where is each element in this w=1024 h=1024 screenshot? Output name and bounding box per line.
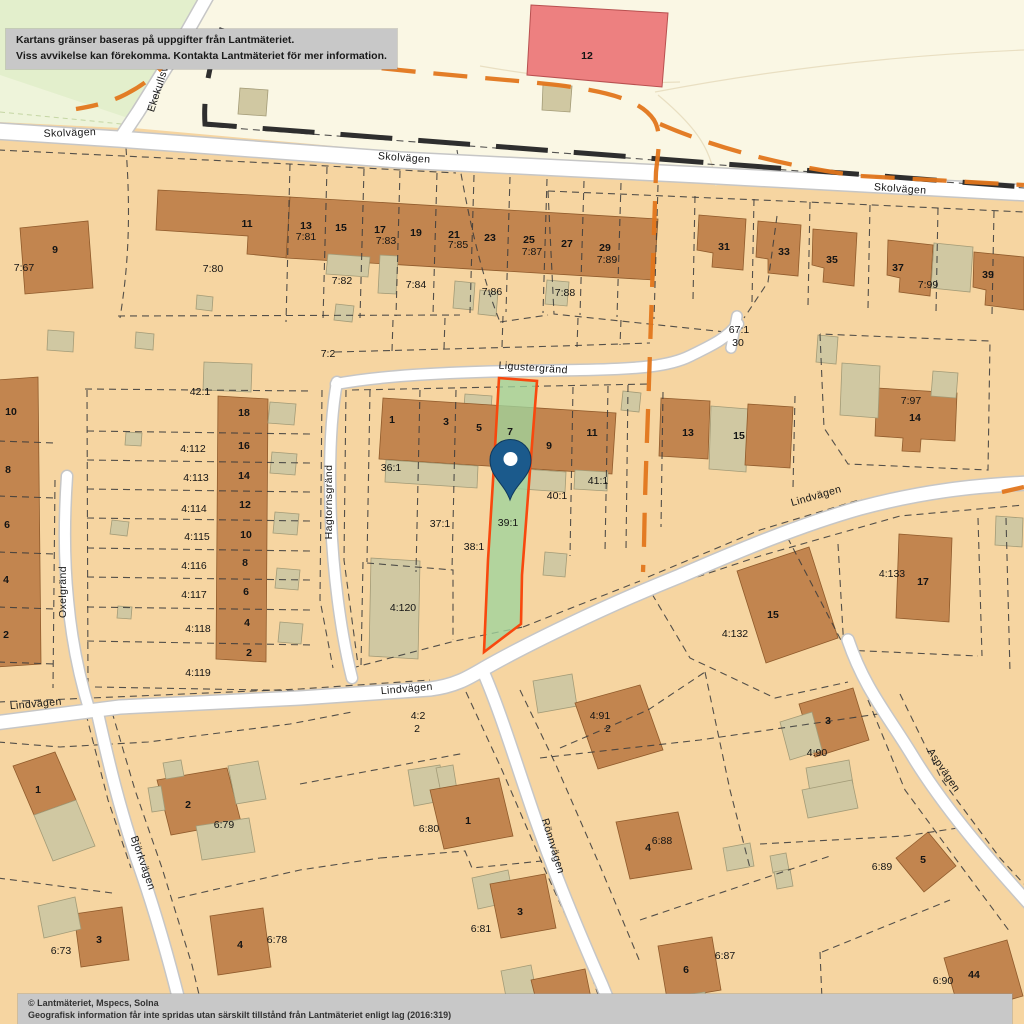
- outbuilding: [774, 869, 793, 889]
- parcel-label: 7:86: [482, 286, 503, 298]
- building: [490, 874, 556, 938]
- outbuilding: [278, 622, 303, 644]
- house-number: 10: [5, 406, 17, 418]
- house-number: 3: [96, 934, 102, 946]
- house-number: 17: [917, 576, 929, 588]
- street-label: Skolvägen: [43, 126, 96, 140]
- parcel-label: 6:87: [715, 950, 736, 962]
- house-number: 3: [825, 715, 831, 727]
- parcel-label: 4:118: [185, 623, 211, 635]
- house-number: 6: [683, 964, 689, 976]
- house-number: 31: [718, 241, 730, 253]
- parcel-label: 4:2: [411, 710, 426, 722]
- outbuilding: [196, 295, 213, 311]
- house-number: 8: [5, 464, 11, 476]
- parcel-label: 36:1: [381, 462, 402, 474]
- outbuilding: [931, 371, 958, 398]
- outbuilding: [203, 362, 252, 392]
- house-number: 15: [767, 609, 779, 621]
- outbuilding: [270, 452, 297, 475]
- building-12: [527, 5, 668, 87]
- house-number: 15: [733, 430, 745, 442]
- parcel-label: 6:89: [872, 861, 893, 873]
- outbuilding: [238, 88, 268, 116]
- house-number: 10: [240, 529, 252, 541]
- house-number: 35: [826, 254, 838, 266]
- parcel-label: 6:81: [471, 923, 492, 935]
- parcel-label: 4:112: [180, 443, 206, 455]
- house-number: 4: [3, 574, 9, 586]
- parcel-label: 4:113: [183, 472, 209, 484]
- outbuilding: [110, 520, 129, 536]
- parcel-label: 7:83: [376, 235, 397, 247]
- parcel-label: 4:91: [590, 710, 611, 722]
- parcel-label: 6:80: [419, 823, 440, 835]
- outbuilding: [723, 843, 754, 871]
- disclaimer-box: Kartans gränser baseras på uppgifter frå…: [6, 29, 397, 69]
- parcel-label: 37:1: [430, 518, 451, 530]
- map-canvas[interactable]: SkolvägenSkolvägenSkolvägenEkekullsvägen…: [0, 0, 1024, 1024]
- house-number: 4: [237, 939, 243, 951]
- house-number: 15: [335, 222, 347, 234]
- parcel-label: 42:1: [190, 386, 211, 398]
- house-number: 14: [238, 470, 250, 482]
- parcel-label: 4:115: [184, 531, 210, 543]
- parcel-label: 4:117: [181, 589, 207, 601]
- house-number: 2: [246, 647, 252, 659]
- parcel-label: 41:1: [588, 475, 609, 487]
- house-number: 12: [581, 50, 593, 62]
- parcel-label: 7:99: [918, 279, 939, 291]
- outbuilding: [268, 402, 296, 425]
- house-number: 39: [982, 269, 994, 281]
- house-number: 8: [242, 557, 248, 569]
- outbuilding: [840, 363, 880, 418]
- parcel-label: 4:119: [185, 667, 211, 679]
- parcel-label: 7:84: [406, 279, 427, 291]
- outbuilding: [621, 391, 641, 412]
- house-number: 4: [645, 842, 651, 854]
- outbuilding: [453, 281, 475, 310]
- parcel-label: 2: [605, 723, 611, 735]
- building: [430, 778, 513, 849]
- parcel-label: 7:81: [296, 231, 317, 243]
- outbuilding: [47, 330, 74, 352]
- parcel-label: 7:89: [597, 254, 618, 266]
- house-number: 1: [465, 815, 471, 827]
- house-number: 13: [682, 427, 694, 439]
- house-number: 11: [241, 218, 252, 230]
- house-number: 19: [410, 227, 422, 239]
- parcel-label: 7:82: [332, 275, 353, 287]
- copyright-line2: Geografisk information får inte spridas …: [28, 1009, 1002, 1021]
- disclaimer-line2: Viss avvikelse kan förekomma. Kontakta L…: [16, 49, 387, 65]
- house-number: 16: [238, 440, 250, 452]
- copyright-box: © Lantmäteriet, Mspecs, Solna Geografisk…: [18, 994, 1012, 1024]
- parcel-label: 4:90: [807, 747, 828, 759]
- house-number: 18: [238, 407, 250, 419]
- house-number: 5: [476, 422, 482, 434]
- house-number: 3: [517, 906, 523, 918]
- outbuilding: [543, 552, 567, 577]
- pin-hole: [504, 452, 518, 466]
- house-number: 25: [523, 234, 535, 246]
- house-number: 14: [909, 412, 921, 424]
- parcel-label: 6:78: [267, 934, 288, 946]
- outbuilding: [135, 332, 154, 350]
- outbuilding: [125, 432, 142, 446]
- house-number: 37: [892, 262, 904, 274]
- street-label: Hagtornsgränd: [323, 465, 335, 540]
- house-number: 12: [239, 499, 251, 511]
- outbuilding: [378, 255, 398, 294]
- outbuilding: [273, 512, 299, 535]
- house-number: 7: [507, 426, 513, 438]
- parcel-label: 39:1: [498, 517, 519, 529]
- house-number: 13: [300, 220, 312, 232]
- house-number: 9: [52, 244, 58, 256]
- house-number: 2: [185, 799, 191, 811]
- parcel-label: 2: [414, 723, 420, 735]
- house-number: 1: [35, 784, 41, 796]
- building: [658, 937, 721, 999]
- outbuilding: [816, 335, 838, 364]
- house-number: 21: [448, 229, 460, 241]
- parcel-label: 6:90: [933, 975, 954, 987]
- house-number: 23: [484, 232, 496, 244]
- parcel-label: 4:116: [181, 560, 207, 572]
- house-number: 1: [389, 414, 395, 426]
- street-label: Oxelgränd: [57, 566, 69, 618]
- house-number: 5: [920, 854, 926, 866]
- outbuilding: [334, 304, 354, 322]
- house-number: 33: [778, 246, 790, 258]
- house-number: 6: [243, 586, 249, 598]
- parcel-label: 6:79: [214, 819, 235, 831]
- parcel-label: 4:133: [879, 568, 905, 580]
- parcel-label: 6:73: [51, 945, 72, 957]
- house-number: 44: [968, 969, 980, 981]
- copyright-line1: © Lantmäteriet, Mspecs, Solna: [28, 997, 1002, 1009]
- parcel-label: 7:97: [901, 395, 922, 407]
- house-number: 9: [546, 440, 552, 452]
- house-number: 29: [599, 242, 611, 254]
- parcel-label: 7:80: [203, 263, 224, 275]
- parcel-label: 7:67: [14, 262, 35, 274]
- outbuilding: [995, 516, 1023, 547]
- building: [20, 221, 93, 294]
- outbuilding: [326, 254, 370, 277]
- disclaimer-line1: Kartans gränser baseras på uppgifter frå…: [16, 33, 387, 49]
- parcel-label: 7:87: [522, 246, 543, 258]
- house-number: 2: [3, 629, 9, 641]
- house-number: 11: [586, 427, 597, 439]
- parcel-label: 40:1: [547, 490, 568, 502]
- parcel-label: 67:1: [729, 324, 750, 336]
- house-number: 27: [561, 238, 573, 250]
- house-number: 17: [374, 224, 386, 236]
- parcel-label: 7:88: [555, 287, 576, 299]
- parcel-label: 38:1: [464, 541, 485, 553]
- building: [745, 404, 793, 468]
- outbuilding: [533, 674, 577, 713]
- house-number: 4: [244, 617, 250, 629]
- parcel-label: 4:114: [181, 503, 207, 515]
- parcel-label: 30: [732, 337, 744, 349]
- parcel-label: 4:132: [722, 628, 748, 640]
- house-number: 3: [443, 416, 449, 428]
- outbuilding: [163, 760, 184, 779]
- parcel-label: 7:2: [321, 348, 336, 360]
- outbuilding: [275, 568, 300, 590]
- parcel-label: 4:120: [390, 602, 416, 614]
- parcel-label: 6:88: [652, 835, 673, 847]
- house-number: 6: [4, 519, 10, 531]
